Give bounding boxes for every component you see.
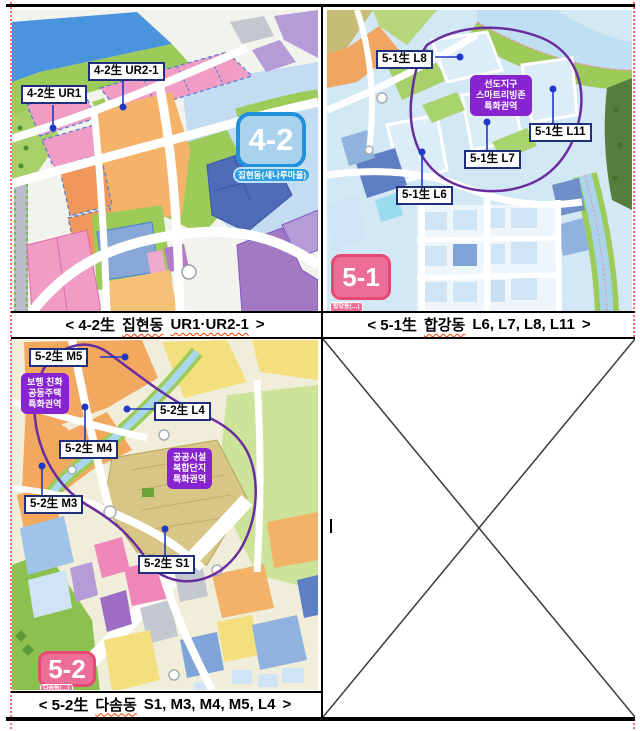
caption-close: > xyxy=(282,696,291,713)
caption-dong: 합강동 xyxy=(424,314,465,335)
district-badge-5-1: 5-1 xyxy=(331,254,391,300)
zone-line-1: 선도지구 xyxy=(476,79,526,90)
zone-line-1: 보행 친화 xyxy=(27,377,63,388)
table-center-border xyxy=(321,7,323,717)
zone-line-3: 특화권역 xyxy=(476,101,526,112)
parcel-label-l4: 5-2生 L4 xyxy=(154,402,211,421)
parcel-label-ur2-1: 4-2生 UR2-1 xyxy=(88,62,165,81)
caption-codes: L6, L7, L8, L11 xyxy=(472,316,575,333)
map-figure-5-2[interactable]: 5-2生 M5 보행 친화 공동주택 특화권역 5-2生 L4 5-2生 M4 … xyxy=(12,340,318,690)
empty-image-placeholder[interactable] xyxy=(323,339,635,717)
text-cursor xyxy=(330,519,332,533)
zone-line-3: 특화권역 xyxy=(173,474,206,485)
parcel-label-l7: 5-1生 L7 xyxy=(464,150,521,169)
zone-line-2: 공동주택 xyxy=(27,388,63,399)
caption-codes: S1, M3, M4, M5, L4 xyxy=(144,696,276,713)
table-row-border-2 xyxy=(11,337,635,339)
caption-close: > xyxy=(256,316,265,333)
parcel-label-m4: 5-2生 M4 xyxy=(59,440,118,459)
parcel-label-l8: 5-1生 L8 xyxy=(376,50,433,69)
caption-close: > xyxy=(582,316,591,333)
district-badge-5-2: 5-2 xyxy=(38,651,96,687)
zone-line-1: 공공시설 xyxy=(173,452,206,463)
parcel-label-l11: 5-1生 L11 xyxy=(529,123,592,142)
placeholder-x-icon xyxy=(323,339,635,717)
zone-box-smart-living: 선도지구 스마트리빙존 특화권역 xyxy=(470,75,532,116)
parcel-label-m5: 5-2生 M5 xyxy=(29,348,88,367)
map-figure-5-1[interactable]: 5-1生 L8 선도지구 스마트리빙존 특화권역 5-1生 L11 5-1生 L… xyxy=(327,10,632,312)
parcel-label-s1: 5-2生 S1 xyxy=(138,555,195,574)
zone-line-3: 특화권역 xyxy=(27,399,63,410)
district-badge-4-2: 4-2 xyxy=(236,112,306,168)
zone-line-2: 스마트리빙존 xyxy=(476,90,526,101)
zone-box-walkable-housing: 보행 친화 공동주택 특화권역 xyxy=(21,373,69,414)
caption-4-2: < 4-2生 집현동 UR1·UR2-1 > xyxy=(12,312,318,337)
caption-codes: UR1·UR2-1 xyxy=(170,316,248,333)
caption-lead: < 5-1生 xyxy=(367,314,417,335)
caption-dong: 다솜동 xyxy=(95,694,136,715)
zone-line-2: 복합단지 xyxy=(173,463,206,474)
district-badge-5-2-subtitle: 다솜동(…) xyxy=(40,684,73,690)
district-badge-4-2-subtitle: 집현동(새나루마을) xyxy=(233,167,311,183)
document-page: 4-2生 UR2-1 4-2生 UR1 4-2 집현동(새나루마을) xyxy=(0,0,640,731)
caption-dong: 집현동 xyxy=(122,314,163,335)
table-row-border-1 xyxy=(11,311,635,313)
parcel-label-ur1: 4-2生 UR1 xyxy=(21,85,87,104)
caption-lead: < 4-2生 xyxy=(65,314,115,335)
zone-box-public-complex: 공공시설 복합단지 특화권역 xyxy=(167,448,212,489)
caption-5-2: < 5-2生 다솜동 S1, M3, M4, M5, L4 > xyxy=(12,692,318,716)
parcel-label-m3: 5-2生 M3 xyxy=(24,495,83,514)
caption-lead: < 5-2生 xyxy=(39,694,89,715)
caption-5-1: < 5-1生 합강동 L6, L7, L8, L11 > xyxy=(323,312,635,337)
parcel-label-l6: 5-1生 L6 xyxy=(396,186,453,205)
map-figure-4-2[interactable]: 4-2生 UR2-1 4-2生 UR1 4-2 집현동(새나루마을) xyxy=(12,10,318,312)
table-bottom-border xyxy=(6,717,635,721)
table-row-border-3 xyxy=(11,691,323,693)
